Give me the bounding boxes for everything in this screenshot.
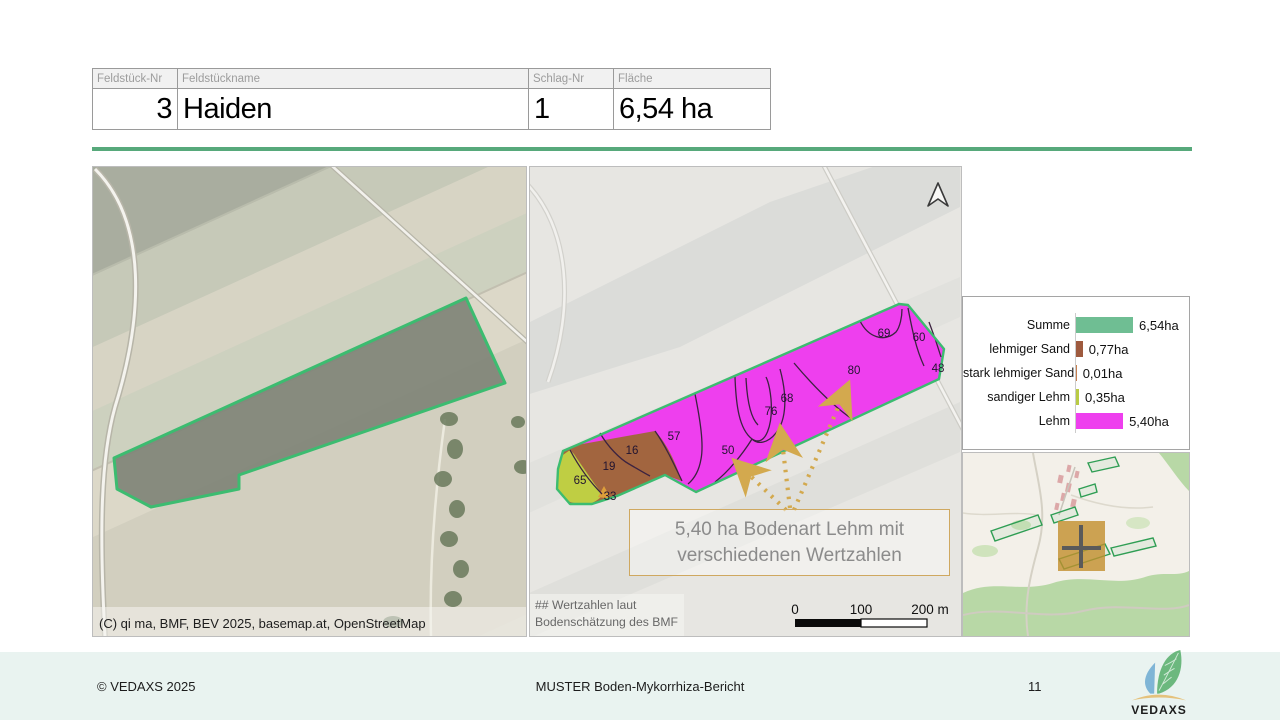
svg-text:0: 0: [791, 602, 799, 617]
aerial-map-image: (C) qi ma, BMF, BEV 2025, basemap.at, Op…: [93, 167, 527, 637]
report-page: { "field_table": { "columns": ["Feldstüc…: [0, 0, 1280, 720]
legend-value: 0,01ha: [1083, 366, 1123, 381]
logo-hull: [1132, 695, 1186, 701]
col-header-feldstueckname: Feldstückname: [178, 69, 529, 89]
col-header-schlag-nr: Schlag-Nr: [529, 69, 614, 89]
legend-swatch-bar: [1076, 413, 1123, 429]
legend-label: lehmiger Sand: [963, 342, 1075, 356]
legend-swatch-bar: [1076, 341, 1083, 357]
legend-value: 0,77ha: [1089, 342, 1129, 357]
wertzahlen-note-line1: ## Wertzahlen laut: [535, 598, 637, 612]
soil-map-panel: 0 100 200 m ## Wertzahlen laut Bodenschä…: [529, 166, 962, 637]
legend-swatch-bar: [1076, 317, 1133, 333]
legend-swatch-bar: [1076, 389, 1079, 405]
logo-text: VEDAXS: [1131, 703, 1187, 717]
vedaxs-logo: VEDAXS: [1128, 645, 1190, 722]
legend-row: stark lehmiger Sand0,01ha: [963, 361, 1189, 385]
footer-document-title: MUSTER Boden-Mykorrhiza-Bericht: [0, 679, 1280, 694]
annotation-callout: 5,40 ha Bodenart Lehm mit verschiedenen …: [629, 509, 950, 576]
footer-page-number: 11: [1028, 679, 1042, 694]
annotation-line1: 5,40 ha Bodenart Lehm mit: [675, 517, 904, 543]
legend-row: Lehm5,40ha: [963, 409, 1189, 433]
legend-value: 0,35ha: [1085, 390, 1125, 405]
overview-map-image: [963, 453, 1189, 636]
annotation-line2: verschiedenen Wertzahlen: [677, 543, 902, 569]
svg-text:200 m: 200 m: [911, 602, 949, 617]
legend-row: sandiger Lehm0,35ha: [963, 385, 1189, 409]
legend-value: 5,40ha: [1129, 414, 1169, 429]
overview-map-panel: [962, 452, 1190, 637]
area-legend-panel: Summe6,54halehmiger Sand0,77hastark lehm…: [962, 296, 1190, 450]
cell-flaeche: 6,54 ha: [614, 89, 771, 130]
legend-row: Summe6,54ha: [963, 313, 1189, 337]
field-info-table: Feldstück-Nr Feldstückname Schlag-Nr Flä…: [92, 68, 771, 130]
cell-feldstueck-nr: 3: [93, 89, 178, 130]
cell-schlag-nr: 1: [529, 89, 614, 130]
wertzahlen-note-line2: Bodenschätzung des BMF: [535, 615, 678, 629]
col-header-feldstueck-nr: Feldstück-Nr: [93, 69, 178, 89]
legend-swatch-bar: [1076, 365, 1077, 381]
legend-label: sandiger Lehm: [963, 390, 1075, 404]
aerial-map-panel: (C) qi ma, BMF, BEV 2025, basemap.at, Op…: [92, 166, 527, 637]
svg-text:100: 100: [850, 602, 873, 617]
legend-rows: Summe6,54halehmiger Sand0,77hastark lehm…: [963, 297, 1189, 433]
legend-label: stark lehmiger Sand: [963, 366, 1075, 380]
logo-blue-sail: [1145, 663, 1155, 694]
col-header-flaeche: Fläche: [614, 69, 771, 89]
legend-label: Lehm: [963, 414, 1075, 428]
legend-row: lehmiger Sand0,77ha: [963, 337, 1189, 361]
cell-feldstueckname: Haiden: [178, 89, 529, 130]
legend-label: Summe: [963, 318, 1075, 332]
map-attribution: (C) qi ma, BMF, BEV 2025, basemap.at, Op…: [99, 616, 426, 631]
green-divider: [92, 147, 1192, 151]
legend-value: 6,54ha: [1139, 318, 1179, 333]
